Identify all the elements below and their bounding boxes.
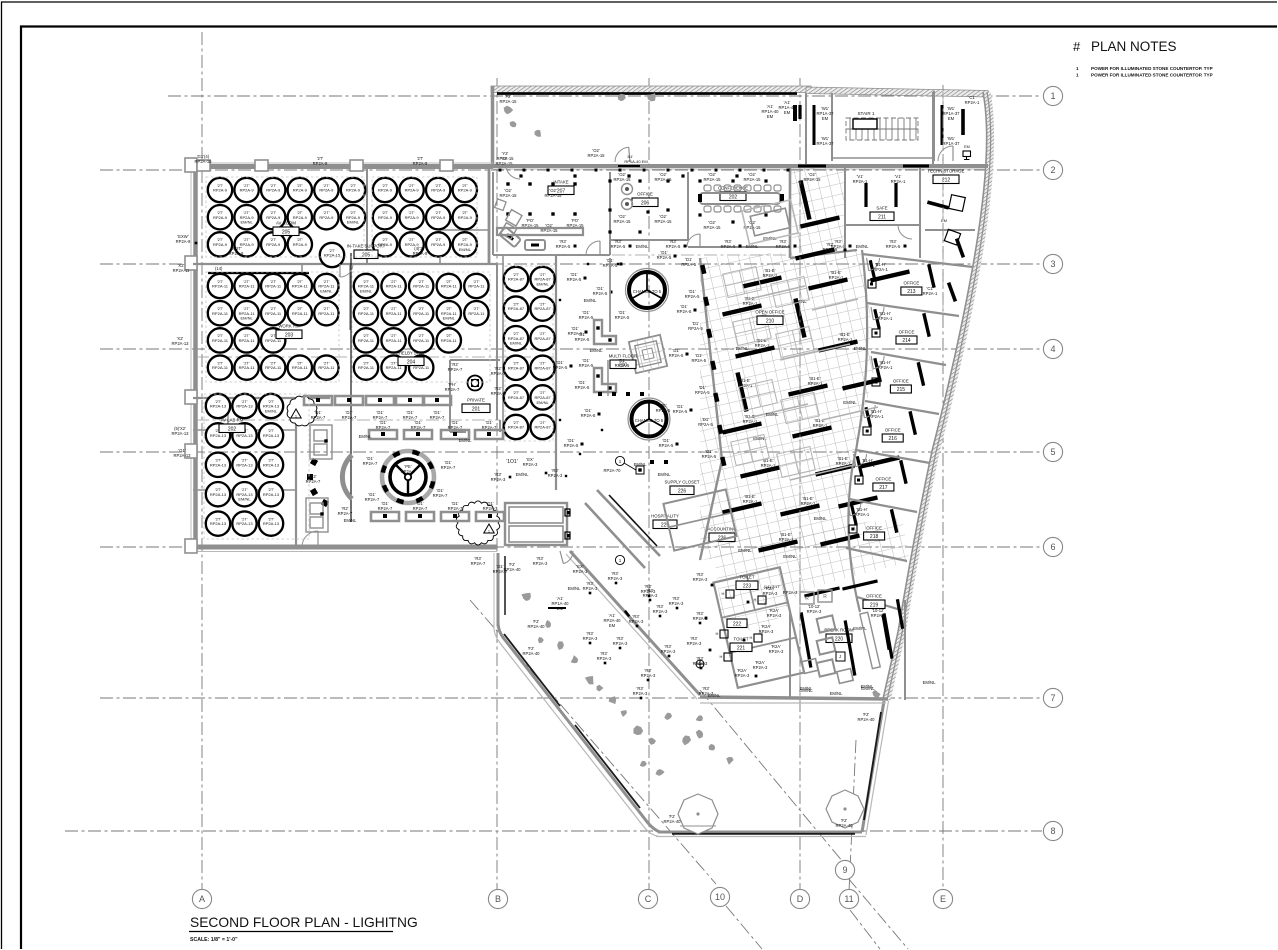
- svg-text:RP2A-1: RP2A-1: [801, 501, 816, 506]
- svg-text:RP2A-13: RP2A-13: [236, 462, 253, 467]
- svg-text:EM/NL: EM/NL: [536, 400, 549, 405]
- svg-text:RP2A-3: RP2A-3: [769, 649, 784, 654]
- svg-text:RP2A-3: RP2A-3: [608, 576, 623, 581]
- svg-text:RP2A-40: RP2A-40: [858, 717, 876, 722]
- svg-text:RP2A-87: RP2A-87: [534, 425, 551, 430]
- svg-text:RP2A-7: RP2A-7: [401, 469, 416, 474]
- svg-text:226: 226: [678, 488, 687, 494]
- svg-text:EM/NL: EM/NL: [344, 518, 357, 523]
- svg-text:RP2A-13: RP2A-13: [236, 433, 253, 438]
- svg-text:H: H: [754, 597, 757, 602]
- svg-text:RP1A-37: RP1A-37: [943, 141, 961, 146]
- svg-text:EM/NL: EM/NL: [814, 516, 827, 521]
- svg-text:C: C: [645, 894, 652, 904]
- svg-text:RP2A-15: RP2A-15: [500, 193, 518, 198]
- svg-text:RP2A-9: RP2A-9: [378, 188, 393, 193]
- svg-text:EM/NL: EM/NL: [746, 244, 759, 249]
- svg-text:RP2A-87: RP2A-87: [508, 425, 525, 430]
- svg-text:RP2A-7: RP2A-7: [411, 425, 426, 430]
- svg-text:210: 210: [766, 318, 775, 324]
- svg-text:H: H: [750, 635, 753, 640]
- svg-text:RP2A-9: RP2A-9: [229, 251, 244, 256]
- svg-text:EM/NL: EM/NL: [738, 548, 752, 553]
- svg-text:RP2A-9: RP2A-9: [213, 188, 228, 193]
- svg-text:RP2A-3: RP2A-3: [759, 629, 774, 634]
- svg-text:EM/NL: EM/NL: [320, 288, 333, 293]
- svg-text:RP2A-11: RP2A-11: [358, 311, 375, 316]
- svg-text:RP2A-7: RP2A-7: [491, 371, 506, 376]
- svg-text:RP2A-11: RP2A-11: [468, 284, 485, 289]
- svg-text:RP2A-11: RP2A-11: [468, 311, 485, 316]
- svg-text:EM: EM: [964, 145, 970, 149]
- svg-text:EM: EM: [767, 114, 774, 119]
- svg-text:1: 1: [488, 530, 490, 534]
- svg-text:RP2A-9: RP2A-9: [413, 161, 428, 166]
- svg-text:202: 202: [228, 426, 237, 432]
- svg-text:1: 1: [1076, 73, 1079, 78]
- svg-text:RP2A-3: RP2A-3: [629, 619, 644, 624]
- svg-text:201: 201: [472, 406, 481, 412]
- svg-text:RP2A-11: RP2A-11: [358, 338, 375, 343]
- svg-text:RP2A-15: RP2A-15: [804, 177, 822, 182]
- svg-text:EM/NL: EM/NL: [584, 298, 597, 303]
- svg-text:RP2A-9: RP2A-9: [240, 188, 255, 193]
- svg-text:RP2A-40: RP2A-40: [523, 651, 541, 656]
- svg-text:RP2A-5: RP2A-5: [688, 326, 703, 331]
- svg-text:E: E: [940, 894, 946, 904]
- svg-text:RP2A-7: RP2A-7: [483, 506, 498, 511]
- svg-text:213: 213: [907, 289, 916, 295]
- svg-text:OFFICE: OFFICE: [893, 379, 909, 384]
- svg-text:RP2A-13: RP2A-13: [210, 492, 227, 497]
- svg-text:RP2A-3: RP2A-3: [735, 673, 750, 678]
- svg-text:RP2A-11: RP2A-11: [318, 365, 335, 370]
- svg-text:IN-TAKE SUPPORT: IN-TAKE SUPPORT: [347, 244, 386, 249]
- svg-text:RP2A-15: RP2A-15: [655, 177, 673, 182]
- svg-text:RP2A-15: RP2A-15: [704, 225, 722, 230]
- svg-text:RP2A-5: RP2A-5: [886, 244, 901, 249]
- svg-text:RP2A-9: RP2A-9: [431, 188, 446, 193]
- svg-text:R: R: [823, 594, 827, 600]
- svg-text:206: 206: [641, 200, 650, 206]
- svg-text:RP2A-40: RP2A-40: [664, 819, 682, 824]
- svg-text:RP2A-87: RP2A-87: [534, 336, 551, 341]
- svg-text:RP2A-13: RP2A-13: [263, 492, 280, 497]
- svg-text:RP2A-1: RP2A-1: [873, 267, 888, 272]
- svg-text:TOILET: TOILET: [740, 575, 755, 580]
- svg-text:RP2A-3: RP2A-3: [653, 609, 668, 614]
- svg-text:SUPPLY CLOSET: SUPPLY CLOSET: [665, 480, 700, 485]
- svg-text:EM/NL: EM/NL: [238, 497, 251, 502]
- svg-text:EM/NL: EM/NL: [830, 691, 843, 696]
- svg-text:EM/NL: EM/NL: [766, 412, 779, 417]
- svg-text:EM/NL: EM/NL: [459, 247, 472, 252]
- svg-text:RP2A-5: RP2A-5: [669, 353, 684, 358]
- svg-text:RP2A-9: RP2A-9: [413, 251, 428, 256]
- svg-text:RP2A-3: RP2A-3: [613, 641, 628, 646]
- svg-text:221: 221: [737, 645, 746, 651]
- svg-text:5: 5: [1050, 447, 1055, 457]
- svg-text:RP2A-5: RP2A-5: [575, 385, 590, 390]
- svg-text:RP2A-13: RP2A-13: [263, 433, 280, 438]
- svg-text:RP2A-11: RP2A-11: [292, 365, 309, 370]
- svg-text:EM/NL: EM/NL: [516, 472, 529, 477]
- svg-text:RP2A-9: RP2A-9: [378, 215, 393, 220]
- svg-text:RP2A-11: RP2A-11: [413, 284, 430, 289]
- svg-text:204: 204: [407, 359, 416, 365]
- svg-text:CHANGE TO 5: CHANGE TO 5: [635, 418, 664, 423]
- svg-text:RP2A-3: RP2A-3: [641, 673, 656, 678]
- svg-text:OFFICE: OFFICE: [637, 192, 653, 197]
- svg-text:'1O1': '1O1': [506, 459, 517, 465]
- svg-text:TECHN STORAGE: TECHN STORAGE: [928, 169, 965, 174]
- svg-text:RP2A-15: RP2A-15: [195, 159, 213, 164]
- svg-text:RP2A-15: RP2A-15: [614, 219, 632, 224]
- svg-text:EM/NL: EM/NL: [854, 346, 867, 351]
- svg-text:219: 219: [870, 602, 879, 608]
- svg-text:RP2A-3: RP2A-3: [693, 577, 708, 582]
- svg-text:EM/NL: EM/NL: [861, 684, 874, 689]
- svg-text:RP2A-1: RP2A-1: [743, 499, 758, 504]
- svg-text:RP2A-1: RP2A-1: [763, 273, 778, 278]
- svg-text:RP2A-5: RP2A-5: [776, 244, 791, 249]
- svg-text:RP2A-11: RP2A-11: [358, 365, 375, 370]
- svg-text:INTAKE: INTAKE: [553, 180, 568, 185]
- svg-text:H: H: [722, 591, 725, 596]
- svg-text:RP2A-1: RP2A-1: [813, 423, 828, 428]
- svg-text:RP2A-13: RP2A-13: [210, 404, 227, 409]
- svg-text:EM/NL: EM/NL: [843, 400, 857, 405]
- svg-text:202: 202: [729, 194, 738, 200]
- svg-text:OFFICE: OFFICE: [876, 477, 892, 482]
- svg-text:RP2A-13: RP2A-13: [174, 453, 192, 458]
- svg-text:RP2A-5: RP2A-5: [564, 443, 579, 448]
- svg-text:J: J: [839, 654, 841, 659]
- svg-text:RP2A-1: RP2A-1: [965, 100, 980, 105]
- svg-text:2: 2: [1050, 165, 1055, 175]
- svg-text:RP2A-7: RP2A-7: [493, 569, 508, 574]
- svg-text:RP2A-5: RP2A-5: [666, 244, 681, 249]
- svg-text:RP1A-37: RP1A-37: [817, 141, 835, 146]
- svg-text:POWER FOR ILLUMINATED STONE CO: POWER FOR ILLUMINATED STONE COUNTERTOP. …: [1091, 73, 1213, 78]
- svg-text:RP2A-9: RP2A-9: [313, 161, 328, 166]
- svg-text:PRIVATE: PRIVATE: [467, 398, 485, 403]
- svg-text:8: 8: [1050, 826, 1055, 836]
- svg-text:H: H: [716, 631, 719, 636]
- svg-text:1: 1: [1076, 66, 1079, 71]
- svg-text:215: 215: [897, 387, 906, 393]
- svg-text:RP2A-5: RP2A-5: [702, 454, 717, 459]
- svg-text:222: 222: [733, 621, 742, 627]
- svg-text:OFFICE: OFFICE: [866, 594, 882, 599]
- svg-text:RP2A-11: RP2A-11: [212, 284, 229, 289]
- svg-text:RP2A-1: RP2A-1: [755, 343, 770, 348]
- svg-text:EM/NL: EM/NL: [360, 288, 373, 293]
- svg-text:RP2A-3: RP2A-3: [807, 609, 822, 614]
- svg-text:PLAN NOTES: PLAN NOTES: [1091, 39, 1177, 54]
- svg-text:RP2A-5: RP2A-5: [685, 294, 700, 299]
- svg-text:RP2A-7: RP2A-7: [363, 461, 378, 466]
- svg-text:EM/NL: EM/NL: [459, 438, 472, 443]
- svg-text:RP2A-1: RP2A-1: [829, 275, 844, 280]
- svg-text:RP2A-7: RP2A-7: [433, 493, 448, 498]
- svg-text:RP2A-5: RP2A-5: [677, 309, 692, 314]
- svg-text:RP2A-11: RP2A-11: [239, 365, 256, 370]
- svg-text:RP2A-3: RP2A-3: [533, 561, 548, 566]
- svg-text:RP2A-7: RP2A-7: [338, 511, 353, 516]
- svg-text:RP2A-11: RP2A-11: [265, 284, 282, 289]
- svg-text:RP2A-3: RP2A-3: [583, 586, 598, 591]
- svg-text:RP2A-87: RP2A-87: [508, 306, 525, 311]
- svg-text:EM: EM: [822, 116, 829, 121]
- svg-text:RP2A-5: RP2A-5: [721, 244, 736, 249]
- svg-text:RP2A-7: RP2A-7: [378, 506, 393, 511]
- svg-text:RP2A-7: RP2A-7: [413, 506, 428, 511]
- svg-text:RP2A-1: RP2A-1: [891, 179, 906, 184]
- svg-text:RP2A-9: RP2A-9: [266, 242, 281, 247]
- svg-text:RP2A-7: RP2A-7: [376, 425, 391, 430]
- svg-text:#: #: [1073, 39, 1081, 54]
- svg-text:EM/NL: EM/NL: [568, 586, 581, 591]
- svg-text:EM/NL: EM/NL: [856, 244, 869, 249]
- svg-text:RP2A-15: RP2A-15: [545, 193, 563, 198]
- svg-text:RP2A-11: RP2A-11: [265, 311, 282, 316]
- svg-text:RP2A-15: RP2A-15: [614, 177, 632, 182]
- svg-text:EM/NL: EM/NL: [347, 220, 360, 225]
- svg-text:216: 216: [889, 436, 898, 442]
- svg-text:RP2A-3: RP2A-3: [693, 616, 708, 621]
- svg-text:211: 211: [878, 214, 886, 220]
- svg-text:223: 223: [743, 583, 752, 589]
- svg-text:RP2A-5: RP2A-5: [656, 408, 671, 413]
- svg-text:RP2A-5: RP2A-5: [579, 315, 594, 320]
- svg-text:RP2A-11: RP2A-11: [239, 338, 256, 343]
- svg-text:RP2A-11: RP2A-11: [212, 311, 229, 316]
- svg-text:RP2A-87: RP2A-87: [508, 277, 525, 282]
- svg-text:RP2A-9: RP2A-9: [431, 215, 446, 220]
- svg-text:RP2A-15: RP2A-15: [500, 99, 518, 104]
- svg-text:RP2A-7: RP2A-7: [342, 415, 357, 420]
- svg-text:RP2A-3: RP2A-3: [661, 649, 676, 654]
- svg-text:RP2A-7: RP2A-7: [441, 465, 456, 470]
- svg-text:B: B: [495, 894, 501, 904]
- svg-text:EM/NL: EM/NL: [853, 626, 867, 631]
- svg-text:RP2A-15: RP2A-15: [704, 177, 722, 182]
- svg-text:WORK RM: WORK RM: [278, 324, 300, 329]
- svg-text:RP2A-5: RP2A-5: [579, 363, 594, 368]
- svg-text:RP2A-13: RP2A-13: [210, 521, 227, 526]
- svg-text:RP2A-5: RP2A-5: [553, 365, 568, 370]
- svg-text:RP2A-3: RP2A-3: [753, 665, 768, 670]
- svg-text:RP2A-9: RP2A-9: [405, 188, 420, 193]
- svg-text:RP2A-11: RP2A-11: [239, 284, 256, 289]
- svg-text:RP2A-5: RP2A-5: [593, 291, 608, 296]
- svg-text:RP2A-11: RP2A-11: [292, 311, 309, 316]
- svg-text:RP2A-3: RP2A-3: [583, 636, 598, 641]
- svg-text:RP2A-11: RP2A-11: [441, 284, 458, 289]
- svg-text:218: 218: [870, 534, 879, 540]
- svg-text:AV ROOM: AV ROOM: [276, 221, 296, 226]
- svg-text:EM/NL: EM/NL: [590, 348, 603, 353]
- svg-text:EM: EM: [941, 218, 947, 223]
- svg-text:217: 217: [879, 485, 888, 491]
- svg-text:EM/NL: EM/NL: [708, 693, 721, 698]
- svg-text:RP2A-87: RP2A-87: [508, 365, 525, 370]
- svg-text:RP2A-13: RP2A-13: [236, 521, 253, 526]
- svg-text:RP2A-9: RP2A-9: [431, 242, 446, 247]
- svg-text:SAFE: SAFE: [876, 206, 887, 211]
- svg-text:RP2A-11: RP2A-11: [386, 311, 403, 316]
- svg-text:RP2A-5: RP2A-5: [568, 331, 583, 336]
- svg-text:RP2A-9: RP2A-9: [346, 188, 361, 193]
- svg-text:1: 1: [295, 415, 297, 419]
- svg-text:RP2A-3: RP2A-3: [523, 462, 538, 467]
- svg-text:EM/NL: EM/NL: [240, 220, 253, 225]
- svg-text:1: 1: [1050, 91, 1055, 101]
- svg-text:RP2A-11: RP2A-11: [212, 365, 229, 370]
- svg-text:EM/NL: EM/NL: [783, 554, 797, 559]
- svg-text:4: 4: [1050, 344, 1055, 354]
- svg-text:EM/NL: EM/NL: [658, 472, 671, 477]
- svg-text:RP2A-9: RP2A-9: [293, 242, 308, 247]
- svg-text:6: 6: [1050, 542, 1055, 552]
- svg-text:RP2A-15: RP2A-15: [588, 153, 606, 158]
- svg-text:RP2A-13: RP2A-13: [263, 462, 280, 467]
- svg-text:RP2A-7: RP2A-7: [430, 415, 445, 420]
- svg-text:RP2A-87: RP2A-87: [534, 365, 551, 370]
- svg-text:RP2A-7: RP2A-7: [311, 415, 326, 420]
- svg-text:RP2A-1: RP2A-1: [855, 512, 870, 517]
- svg-text:RP2A-5: RP2A-5: [581, 413, 596, 418]
- svg-text:RP2A-40: RP2A-40: [528, 624, 546, 629]
- svg-text:RP2A-11: RP2A-11: [292, 284, 309, 289]
- svg-text:RP2A-9: RP2A-9: [293, 188, 308, 193]
- svg-text:RP2A-1: RP2A-1: [779, 537, 794, 542]
- svg-text:RP2A-11: RP2A-11: [265, 365, 282, 370]
- svg-text:OFFICE: OFFICE: [899, 330, 915, 335]
- svg-text:RP2A-5: RP2A-5: [556, 244, 571, 249]
- svg-text:SCALE: 1/8" = 1'-0": SCALE: 1/8" = 1'-0": [190, 937, 238, 943]
- svg-text:7: 7: [1050, 693, 1055, 703]
- svg-text:RP2A-11: RP2A-11: [413, 311, 430, 316]
- svg-text:RP2A-11: RP2A-11: [441, 338, 458, 343]
- svg-text:RP2A-15: RP2A-15: [541, 228, 559, 233]
- svg-text:EM/NL: EM/NL: [800, 686, 813, 691]
- svg-text:RP2A-3: RP2A-3: [597, 656, 612, 661]
- svg-text:RP2A-7: RP2A-7: [471, 561, 486, 566]
- svg-text:RP2A-70: RP2A-70: [604, 468, 622, 473]
- svg-text:D: D: [797, 894, 804, 904]
- svg-text:RP2A-7: RP2A-7: [482, 425, 497, 430]
- svg-text:RP2A-7: RP2A-7: [448, 506, 463, 511]
- svg-text:RP2A-1: RP2A-1: [743, 419, 758, 424]
- svg-text:RP2A-3: RP2A-3: [783, 590, 798, 595]
- svg-text:RP2A-9: RP2A-9: [293, 215, 308, 220]
- svg-text:OFFICE: OFFICE: [866, 526, 882, 531]
- svg-text:RP2A-3: RP2A-3: [633, 691, 648, 696]
- svg-text:RP2A-13: RP2A-13: [210, 462, 227, 467]
- svg-text:RP2A-7: RP2A-7: [306, 479, 321, 484]
- svg-text:RP2A-1: RP2A-1: [836, 461, 851, 466]
- svg-text:EM/NL: EM/NL: [443, 316, 456, 321]
- svg-text:RP2A-5: RP2A-5: [698, 422, 713, 427]
- svg-text:RP2A-15: RP2A-15: [497, 156, 515, 161]
- svg-text:11: 11: [844, 894, 853, 904]
- svg-text:RP2A-5: RP2A-5: [659, 443, 674, 448]
- svg-text:EM/NL: EM/NL: [265, 408, 278, 413]
- svg-text:214: 214: [902, 338, 911, 344]
- svg-text:RP2A-9: RP2A-9: [266, 215, 281, 220]
- svg-text:220: 220: [835, 636, 844, 642]
- svg-text:RP2A-3: RP2A-3: [548, 473, 563, 478]
- svg-text:RP2A-9: RP2A-9: [213, 242, 228, 247]
- svg-text:A: A: [199, 894, 205, 904]
- svg-text:RP2A-13: RP2A-13: [172, 341, 190, 346]
- svg-text:RP2A-5: RP2A-5: [823, 247, 838, 252]
- svg-text:EM/NL: EM/NL: [536, 281, 549, 286]
- svg-text:EM/NL: EM/NL: [240, 316, 253, 321]
- svg-text:SECOND FLOOR PLAN - LIGHITNG: SECOND FLOOR PLAN - LIGHITNG: [190, 915, 418, 930]
- svg-text:205: 205: [282, 229, 291, 235]
- svg-text:RP2A-7: RP2A-7: [365, 497, 380, 502]
- svg-text:RP2A-7: RP2A-7: [448, 367, 463, 372]
- svg-text:RP2A-3: RP2A-3: [573, 569, 588, 574]
- svg-text:RP2A-5: RP2A-5: [695, 390, 710, 395]
- svg-text:RP2A-9: RP2A-9: [458, 188, 473, 193]
- svg-text:205: 205: [362, 252, 371, 258]
- svg-text:9: 9: [842, 865, 847, 875]
- svg-text:RP2A-87: RP2A-87: [508, 395, 525, 400]
- svg-text:RP2A-7: RP2A-7: [491, 391, 506, 396]
- svg-text:RP2A-1: RP2A-1: [860, 463, 875, 468]
- svg-text:POWER FOR ILLUMINATED STONE CO: POWER FOR ILLUMINATED STONE COUNTERTOP. …: [1091, 66, 1213, 71]
- svg-text:RP2A-1: RP2A-1: [838, 337, 853, 342]
- svg-text:EM/NL: EM/NL: [923, 680, 936, 685]
- svg-text:203: 203: [285, 332, 294, 338]
- svg-text:RP2A-9: RP2A-9: [319, 188, 334, 193]
- svg-text:RP2A-5: RP2A-5: [673, 409, 688, 414]
- svg-text:RP2A-13: RP2A-13: [210, 433, 227, 438]
- svg-text:RP2A-1: RP2A-1: [923, 291, 938, 296]
- svg-text:RP2A-13: RP2A-13: [172, 431, 190, 436]
- svg-text:RP2A-5: RP2A-5: [691, 358, 706, 363]
- svg-text:(14) 'T1T': (14) 'T1T': [764, 584, 781, 589]
- svg-text:RP2A-11: RP2A-11: [173, 268, 190, 273]
- svg-text:OFFICE: OFFICE: [904, 281, 920, 286]
- svg-text:RP2A-1: RP2A-1: [878, 316, 893, 321]
- svg-text:EM/NL: EM/NL: [510, 341, 523, 346]
- svg-text:RP2A-13: RP2A-13: [263, 521, 280, 526]
- svg-text:EM/NL: EM/NL: [736, 346, 749, 351]
- svg-text:RP2A-11: RP2A-11: [318, 311, 335, 316]
- svg-text:RP2A-7: RP2A-7: [445, 387, 460, 392]
- svg-text:3: 3: [1050, 259, 1055, 269]
- svg-text:R: R: [805, 596, 809, 602]
- svg-text:RP2A-40: RP2A-40: [836, 823, 854, 828]
- svg-text:EM: EM: [609, 623, 616, 628]
- svg-text:RP2A-5: RP2A-5: [567, 277, 582, 282]
- svg-text:RP2A-5: RP2A-5: [681, 262, 696, 267]
- svg-text:EM: EM: [948, 116, 955, 121]
- svg-text:ACCOUNTING: ACCOUNTING: [708, 527, 738, 532]
- svg-text:RP2A-11: RP2A-11: [386, 284, 403, 289]
- svg-text:RP2A-5: RP2A-5: [611, 244, 626, 249]
- svg-text:AV LAB RM: AV LAB RM: [221, 418, 244, 423]
- svg-text:RP2A-5: RP2A-5: [657, 255, 672, 260]
- svg-text:RP2A-13: RP2A-13: [236, 404, 253, 409]
- svg-text:RP2A-1: RP2A-1: [853, 179, 868, 184]
- svg-text:RP2A-9: RP2A-9: [319, 215, 334, 220]
